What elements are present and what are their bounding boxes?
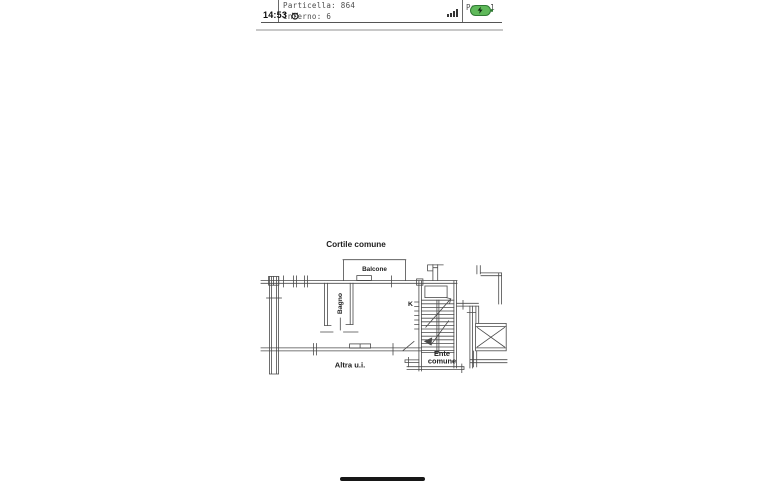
label-bathroom: Bagno [337, 293, 344, 314]
floor-plan-drawing[interactable]: Cortile comune Balcone Bagno K Ente comu… [256, 232, 512, 382]
label-other-unit: Altra u.i. [335, 361, 365, 370]
field-particella: Particella: 864 [283, 1, 355, 10]
status-time: 14:53 [263, 10, 287, 20]
label-balcony: Balcone [362, 266, 387, 273]
battery-bolt-glyph [478, 7, 483, 14]
phone-screenshot: Particella: 864 Interno: 6 Pag. 1 14:53 [0, 0, 764, 492]
cellular-signal-icon [447, 9, 458, 17]
battery-icon [470, 5, 491, 16]
table-border-bottom [261, 22, 502, 23]
battery-tip [491, 9, 493, 13]
label-kitchen: K [408, 301, 413, 308]
alarm-clock-icon [291, 12, 299, 20]
home-indicator[interactable] [340, 477, 425, 481]
table-border-mid [462, 0, 463, 23]
label-comune: comune [428, 357, 456, 366]
page-edge-line [256, 29, 503, 31]
label-courtyard: Cortile comune [326, 240, 386, 249]
